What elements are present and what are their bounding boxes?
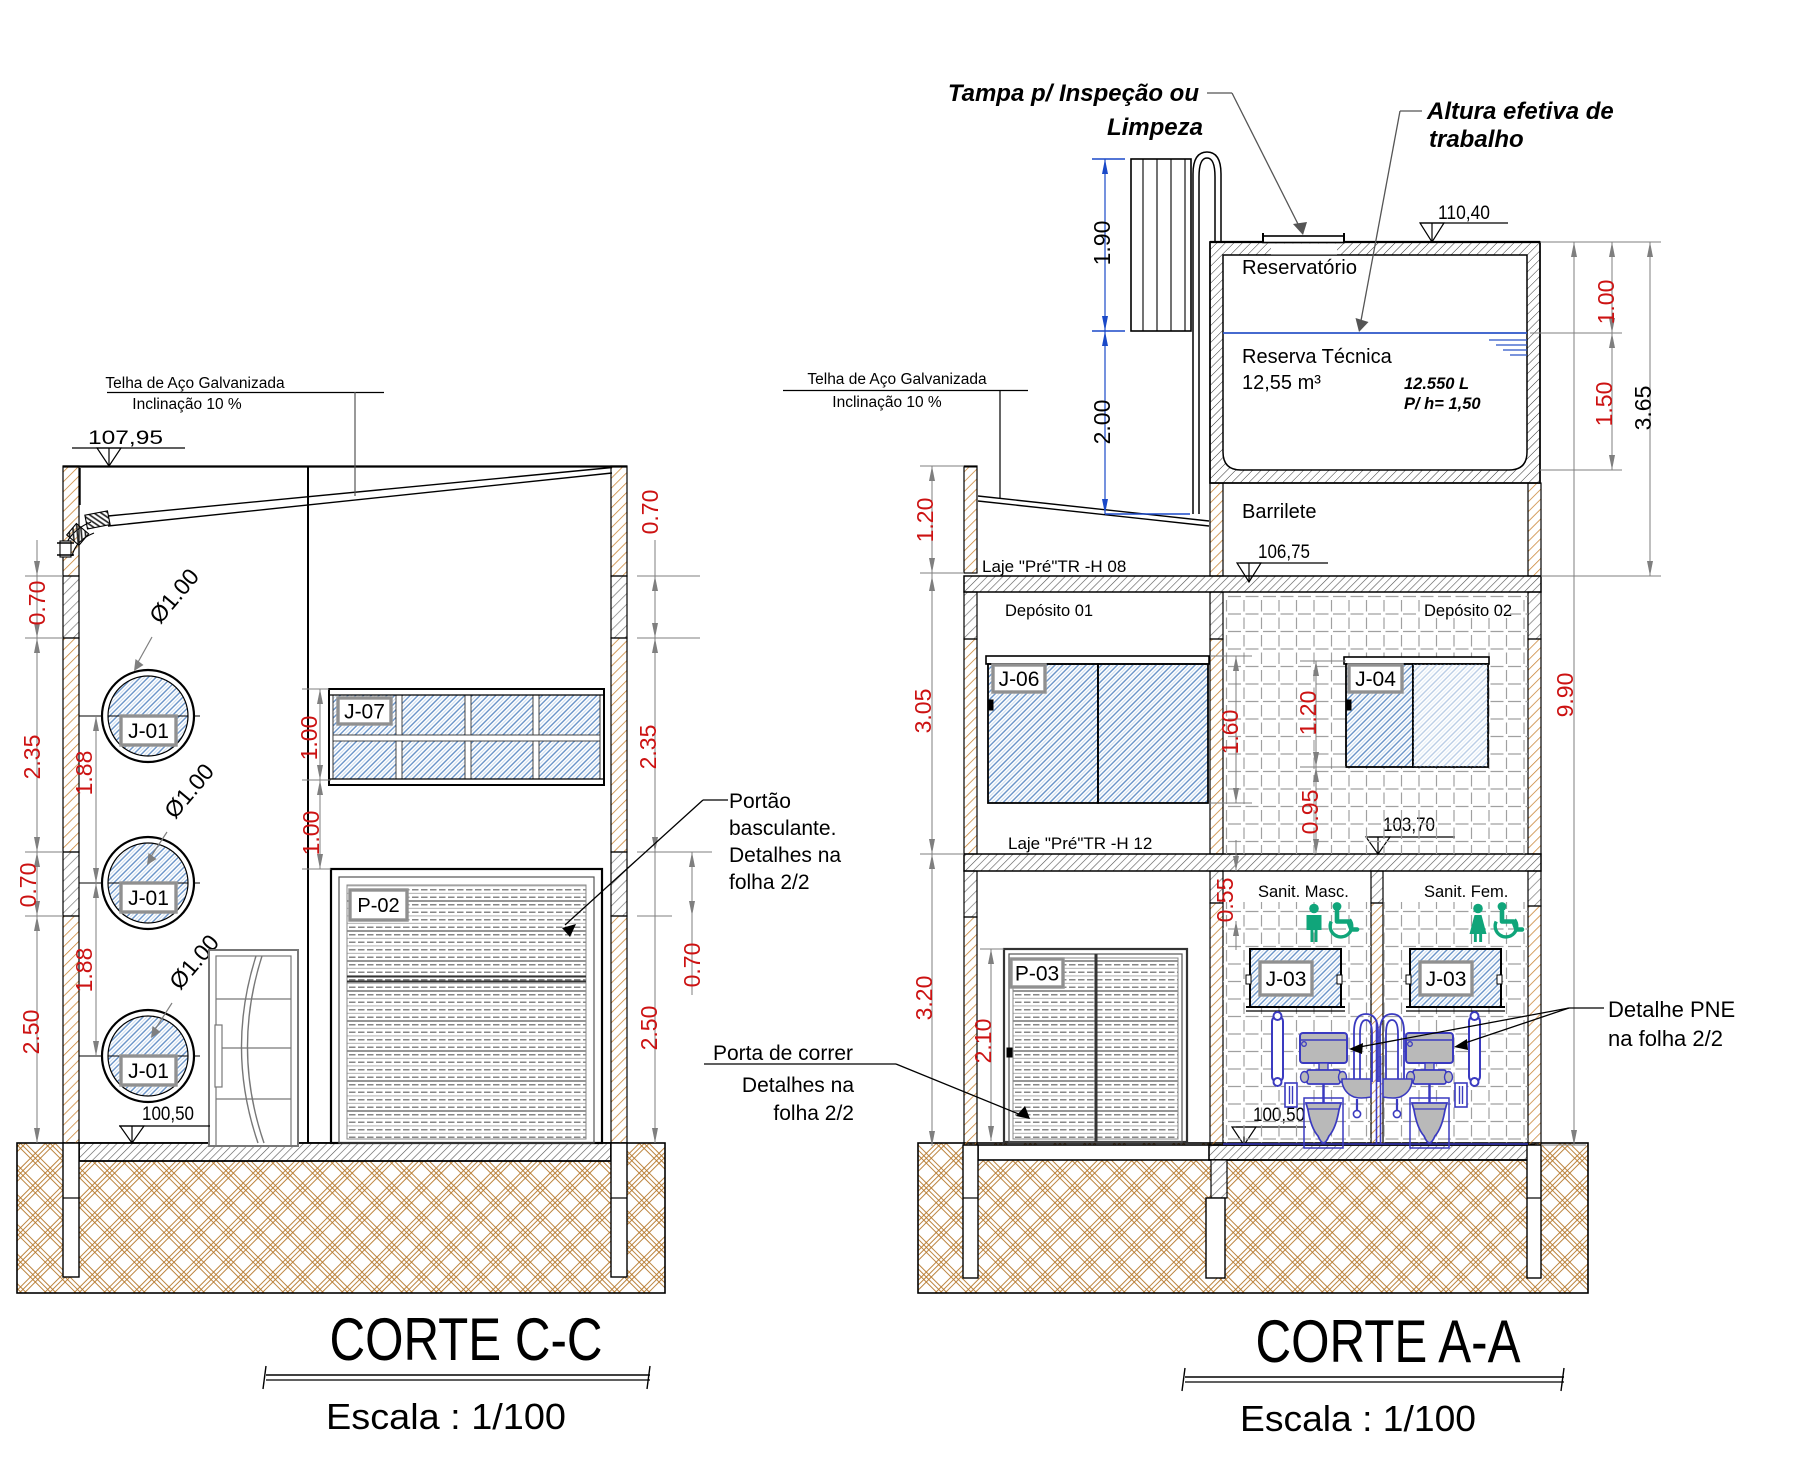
- svg-text:J-01: J-01: [128, 720, 169, 743]
- svg-text:12,55 m³: 12,55 m³: [1242, 372, 1321, 394]
- svg-text:2.10: 2.10: [970, 1019, 996, 1064]
- svg-text:Altura efetiva de: Altura efetiva de: [1426, 98, 1614, 125]
- svg-text:2.00: 2.00: [1089, 400, 1115, 445]
- svg-text:Escala : 1/100: Escala : 1/100: [1240, 1398, 1476, 1439]
- svg-text:J-01: J-01: [128, 887, 169, 910]
- svg-text:1.90: 1.90: [1089, 221, 1115, 266]
- svg-text:1.88: 1.88: [71, 751, 97, 796]
- svg-text:106,75: 106,75: [1258, 541, 1310, 563]
- svg-text:0.70: 0.70: [637, 490, 663, 535]
- svg-text:Barrilete: Barrilete: [1242, 501, 1316, 523]
- svg-text:107,95: 107,95: [88, 427, 163, 449]
- svg-text:na folha 2/2: na folha 2/2: [1608, 1026, 1723, 1051]
- svg-text:Telha de Aço Galvanizada: Telha de Aço Galvanizada: [105, 375, 285, 392]
- svg-text:CORTE C-C: CORTE C-C: [330, 1306, 603, 1373]
- svg-text:2.35: 2.35: [19, 735, 45, 780]
- svg-text:J-04: J-04: [1355, 668, 1396, 691]
- svg-text:1.00: 1.00: [298, 811, 324, 856]
- svg-text:3.05: 3.05: [910, 689, 936, 734]
- svg-text:0.70: 0.70: [679, 943, 705, 988]
- svg-text:0.70: 0.70: [15, 863, 41, 908]
- svg-text:2.50: 2.50: [18, 1010, 44, 1055]
- svg-text:J-06: J-06: [999, 668, 1040, 691]
- svg-text:Limpeza: Limpeza: [1107, 114, 1203, 141]
- svg-text:1.88: 1.88: [71, 948, 97, 993]
- svg-text:1.20: 1.20: [1295, 691, 1321, 736]
- svg-text:110,40: 110,40: [1438, 202, 1490, 224]
- svg-text:Sanit. Fem.: Sanit. Fem.: [1424, 883, 1508, 901]
- svg-text:Laje "Pré"TR -H 08: Laje "Pré"TR -H 08: [982, 557, 1126, 576]
- svg-text:Inclinação 10 %: Inclinação 10 %: [832, 394, 942, 411]
- svg-text:folha 2/2: folha 2/2: [773, 1102, 854, 1125]
- svg-text:Reserva Técnica: Reserva Técnica: [1242, 346, 1393, 368]
- svg-text:P-02: P-02: [357, 895, 399, 917]
- svg-text:1.60: 1.60: [1217, 710, 1243, 755]
- svg-text:Portão: Portão: [729, 790, 791, 813]
- svg-text:CORTE A-A: CORTE A-A: [1256, 1308, 1521, 1375]
- svg-text:2.35: 2.35: [635, 725, 661, 770]
- svg-text:Reservatório: Reservatório: [1242, 257, 1357, 279]
- svg-text:J-07: J-07: [344, 701, 385, 724]
- svg-text:Inclinação 10 %: Inclinação 10 %: [132, 396, 242, 413]
- svg-text:12.550 L: 12.550 L: [1404, 375, 1469, 393]
- svg-text:Depósito 01: Depósito 01: [1005, 602, 1093, 620]
- svg-text:P/ h= 1,50: P/ h= 1,50: [1404, 395, 1481, 413]
- svg-text:1.00: 1.00: [296, 716, 322, 761]
- svg-text:Detalhes na: Detalhes na: [729, 844, 841, 867]
- svg-text:Depósito 02: Depósito 02: [1424, 602, 1512, 620]
- svg-text:P-03: P-03: [1015, 963, 1059, 986]
- svg-text:J-01: J-01: [128, 1060, 169, 1083]
- svg-text:J-03: J-03: [1426, 968, 1467, 991]
- svg-text:2.50: 2.50: [636, 1006, 662, 1051]
- svg-text:trabalho: trabalho: [1429, 126, 1524, 153]
- svg-text:Tampa p/ Inspeção ou: Tampa p/ Inspeção ou: [948, 80, 1199, 107]
- svg-text:1.00: 1.00: [1593, 280, 1619, 325]
- svg-text:Escala : 1/100: Escala : 1/100: [326, 1396, 566, 1437]
- svg-text:9.90: 9.90: [1552, 673, 1578, 718]
- svg-text:Telha de Aço Galvanizada: Telha de Aço Galvanizada: [807, 371, 987, 388]
- svg-text:0.95: 0.95: [1297, 790, 1323, 835]
- svg-text:1.20: 1.20: [912, 498, 938, 543]
- svg-text:Detalhes na: Detalhes na: [742, 1074, 854, 1097]
- svg-text:Laje "Pré"TR -H 12: Laje "Pré"TR -H 12: [1008, 834, 1152, 853]
- svg-text:Sanit. Masc.: Sanit. Masc.: [1258, 883, 1349, 901]
- svg-text:100,50: 100,50: [142, 1103, 194, 1125]
- svg-text:3.20: 3.20: [911, 976, 937, 1021]
- svg-text:Detalhe PNE: Detalhe PNE: [1608, 997, 1735, 1022]
- svg-text:0.70: 0.70: [24, 581, 50, 626]
- svg-text:J-03: J-03: [1266, 968, 1307, 991]
- svg-text:3.65: 3.65: [1630, 386, 1656, 431]
- svg-text:0.55: 0.55: [1212, 878, 1238, 923]
- svg-text:basculante.: basculante.: [729, 817, 836, 840]
- svg-text:Porta de correr: Porta de correr: [713, 1042, 853, 1065]
- svg-text:folha 2/2: folha 2/2: [729, 871, 810, 894]
- svg-text:1.50: 1.50: [1591, 382, 1617, 427]
